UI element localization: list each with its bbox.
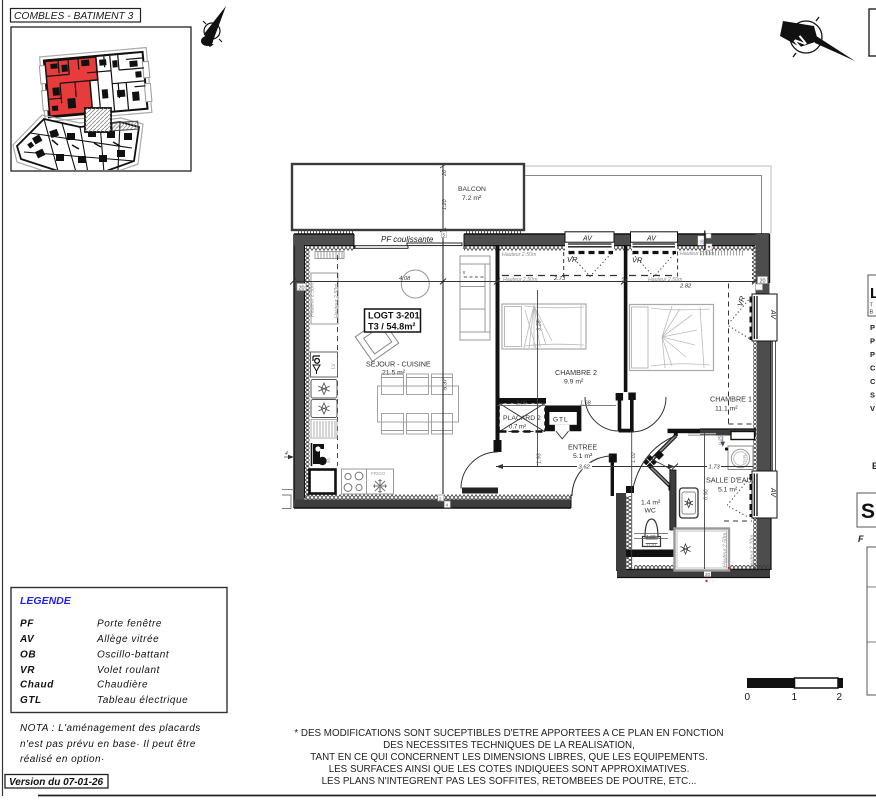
svg-text:Chaud: Chaud — [20, 680, 54, 691]
svg-text:5: 5 — [622, 277, 625, 283]
svg-text:GTL: GTL — [20, 695, 42, 706]
svg-text:Tableau électrique: Tableau électrique — [97, 695, 188, 706]
svg-text:LES PLANS N'INTEGRENT PAS LES: LES PLANS N'INTEGRENT PAS LES SOFFITES, … — [322, 776, 697, 787]
svg-text:n'est pas prévu en base· Il pe: n'est pas prévu en base· Il peut être — [20, 739, 196, 750]
svg-text:Hauteur 2.50m: Hauteur 2.50m — [502, 252, 537, 258]
svg-text:LOGT 3-201: LOGT 3-201 — [368, 311, 420, 321]
svg-text:GTL: GTL — [553, 417, 569, 424]
svg-text:AV: AV — [646, 236, 657, 243]
svg-text:0.7 m²: 0.7 m² — [509, 425, 526, 431]
svg-text:S: S — [870, 391, 875, 400]
svg-text:0: 0 — [745, 692, 751, 703]
svg-text:Hauteur 2.20m: Hauteur 2.20m — [750, 534, 756, 569]
svg-text:0.70: 0.70 — [647, 543, 656, 548]
svg-text:LEGENDE: LEGENDE — [20, 595, 72, 607]
svg-text:1.93: 1.93 — [537, 452, 543, 464]
svg-text:9.9 m²: 9.9 m² — [564, 379, 584, 386]
svg-text:L: L — [870, 285, 876, 302]
svg-text:1.00: 1.00 — [516, 401, 528, 407]
svg-text:ENTREE: ENTREE — [568, 443, 597, 452]
svg-text:P: P — [870, 323, 875, 332]
svg-text:60: 60 — [326, 458, 331, 463]
svg-text:0.90: 0.90 — [704, 488, 710, 500]
svg-text:Version du 07-01-26: Version du 07-01-26 — [9, 777, 104, 788]
svg-text:NOTA : L'aménagement des placa: NOTA : L'aménagement des placards — [20, 723, 201, 734]
svg-text:P: P — [870, 350, 875, 359]
svg-text:CHAMBRE 2: CHAMBRE 2 — [555, 368, 597, 377]
svg-text:Chaudière: Chaudière — [97, 680, 148, 691]
svg-text:5.1 m²: 5.1 m² — [718, 487, 738, 494]
svg-text:PF: PF — [20, 619, 34, 630]
svg-text:LES SURFACES AINSI QUE LES COT: LES SURFACES AINSI QUE LES COTES INDIQUE… — [329, 764, 690, 775]
svg-text:* DES MODIFICATIONS SONT SUCEP: * DES MODIFICATIONS SONT SUCEPTIBLES D'E… — [294, 728, 723, 739]
svg-text:0.25: 0.25 — [718, 436, 723, 445]
svg-text:TANT EN CE QUI CONCERNENT LES: TANT EN CE QUI CONCERNENT LES DIMENSIONS… — [310, 752, 707, 763]
svg-text:4.08: 4.08 — [399, 276, 411, 282]
svg-text:Hauteur 2.50m: Hauteur 2.50m — [334, 283, 340, 318]
svg-text:SEJOUR - CUISINE: SEJOUR - CUISINE — [366, 360, 431, 369]
svg-text:20: 20 — [700, 239, 705, 244]
svg-text:LV: LV — [331, 363, 337, 369]
svg-text:AV: AV — [19, 634, 35, 645]
svg-text:11.1 m²: 11.1 m² — [715, 406, 738, 413]
svg-text:P: P — [870, 337, 875, 346]
svg-text:CHAMBRE 1: CHAMBRE 1 — [710, 395, 752, 404]
svg-text:F: F — [858, 534, 864, 544]
svg-text:3.28: 3.28 — [537, 319, 543, 331]
svg-text:20: 20 — [760, 279, 766, 285]
svg-text:5.1 m²: 5.1 m² — [573, 453, 593, 460]
svg-text:Hauteur 2.50m: Hauteur 2.50m — [723, 532, 729, 567]
svg-text:Volet roulant: Volet roulant — [97, 665, 161, 676]
svg-text:20: 20 — [299, 286, 305, 292]
svg-text:20: 20 — [442, 169, 448, 177]
svg-text:réalisé en option·: réalisé en option· — [20, 754, 105, 765]
svg-text:BALCON: BALCON — [458, 186, 486, 193]
svg-text:1: 1 — [792, 692, 798, 703]
svg-text:V: V — [870, 404, 875, 413]
svg-text:AV: AV — [769, 487, 776, 498]
svg-text:VR: VR — [20, 665, 35, 676]
svg-text:AV: AV — [769, 309, 776, 320]
svg-text:21.5 m²: 21.5 m² — [382, 370, 406, 377]
svg-text:Hauteur 2.50m: Hauteur 2.50m — [503, 277, 538, 283]
svg-text:E: E — [872, 461, 876, 471]
svg-text:FRIGO: FRIGO — [371, 471, 386, 476]
svg-text:20: 20 — [705, 572, 711, 577]
svg-text:1.02: 1.02 — [631, 452, 637, 463]
svg-text:PF coulissante: PF coulissante — [381, 235, 434, 244]
svg-text:1.4 m²: 1.4 m² — [641, 500, 661, 507]
svg-text:2: 2 — [837, 692, 843, 703]
svg-text:OB: OB — [20, 650, 36, 661]
svg-text:1.20: 1.20 — [442, 198, 448, 210]
svg-text:SALLE D'EAU.: SALLE D'EAU. — [706, 476, 754, 485]
svg-text:AV: AV — [582, 236, 593, 243]
svg-text:1.68: 1.68 — [580, 401, 592, 407]
svg-text:COMBLES - BATIMENT 3: COMBLES - BATIMENT 3 — [14, 11, 134, 22]
svg-text:1.73: 1.73 — [709, 464, 721, 470]
svg-text:5: 5 — [443, 233, 446, 238]
svg-text:1.00: 1.00 — [646, 534, 656, 540]
svg-text:Hauteur 2.50m: Hauteur 2.50m — [648, 277, 683, 283]
svg-text:C: C — [870, 377, 876, 386]
svg-text:2.82: 2.82 — [679, 284, 692, 290]
svg-text:3.62: 3.62 — [579, 464, 591, 470]
svg-text:B: B — [870, 310, 874, 316]
svg-text:7.2 m²: 7.2 m² — [462, 195, 482, 202]
svg-text:Oscillo-battant: Oscillo-battant — [97, 650, 170, 661]
svg-text:Allège vitrée: Allège vitrée — [96, 634, 159, 645]
svg-text:2.73: 2.73 — [553, 276, 566, 282]
svg-text:T3 / 54.8m²: T3 / 54.8m² — [368, 322, 416, 332]
svg-text:S: S — [861, 500, 875, 523]
svg-text:VR: VR — [632, 256, 643, 265]
svg-text:C: C — [870, 364, 876, 373]
svg-text:WC: WC — [645, 508, 656, 515]
svg-text:PLACARD 2: PLACARD 2 — [503, 415, 541, 422]
svg-text:DES NECESSITES TECHNIQUES DE L: DES NECESSITES TECHNIQUES DE LA REALISAT… — [383, 740, 635, 751]
svg-text:5.37: 5.37 — [443, 378, 449, 390]
svg-text:Hauteur 2.50m: Hauteur 2.50m — [310, 282, 316, 317]
svg-text:Porte fenêtre: Porte fenêtre — [97, 619, 162, 630]
svg-text:4: 4 — [285, 451, 288, 457]
svg-text:MAL: MAL — [742, 455, 747, 464]
